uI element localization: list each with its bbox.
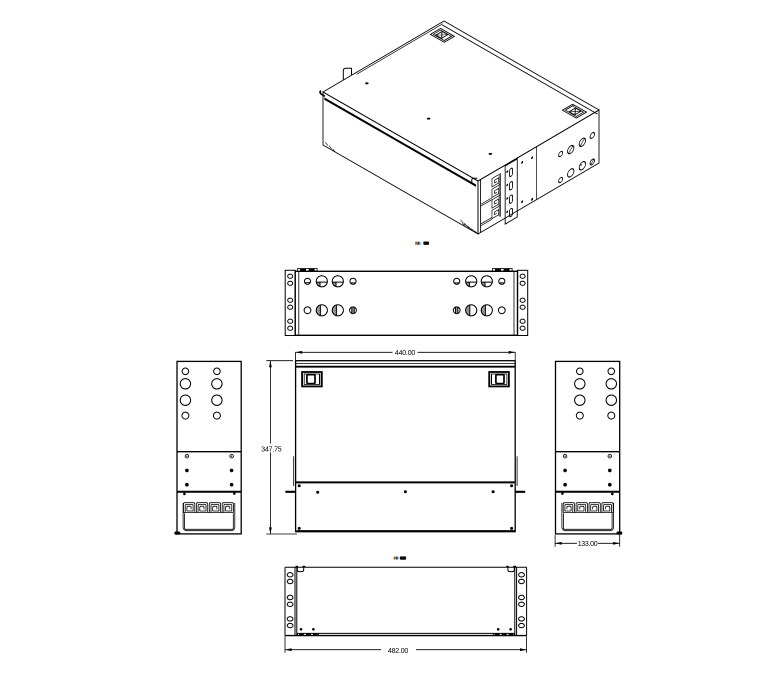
svg-text:347.75: 347.75	[261, 446, 282, 453]
svg-text:133.00: 133.00	[578, 541, 598, 548]
svg-text:440.00: 440.00	[395, 350, 416, 357]
svg-text:482.00: 482.00	[388, 648, 409, 655]
